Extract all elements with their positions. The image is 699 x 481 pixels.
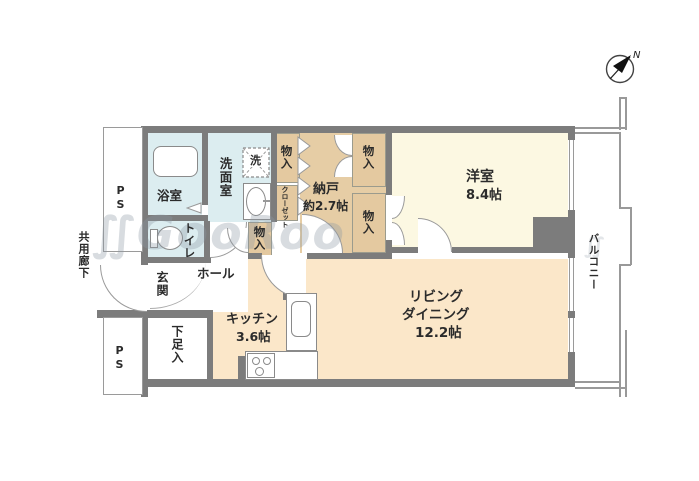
label-living-size: 12.2帖 [415,326,462,340]
window-living-1 [569,258,574,311]
window-living-2 [569,318,574,352]
washbasin-faucet [263,200,270,202]
wall-right-3 [568,311,575,318]
label-balcony: バルコニー [588,233,599,291]
wall-western-bottom-right [452,247,533,253]
balcony-bottom-line-1 [575,381,621,383]
label-genkan: 玄関 [156,271,168,297]
compass-north-label: N [633,50,641,61]
label-toilet: トイレ [183,222,195,260]
label-ps-top: PS [115,184,126,212]
label-storage-4: 物入 [362,210,374,235]
floor-plan: N ∬GooRoo ∬ 共用廊下 PS PS 浴室 洗面室 洗 トイレ 物入 ク… [0,0,699,481]
label-western-size: 8.4帖 [466,189,502,203]
balcony-bottom-line-2 [575,387,626,389]
stove-burner-1 [252,357,260,365]
label-kitchen-name: キッチン [226,313,278,327]
balcony-right-upper [619,132,621,208]
watermark-symbol: ∬ [92,206,137,260]
wall-right-2 [568,210,575,258]
label-washer: 洗 [250,155,261,167]
window-western-room [569,140,574,210]
label-bathroom: 浴室 [157,189,182,202]
stove-burner-2 [263,357,271,365]
front-door-swing [100,265,147,312]
label-living-line1: リビング [409,290,463,304]
stove-burner-3 [255,367,264,376]
watermark: ∬GooRoo [92,206,346,260]
label-closet: クローゼット [281,186,288,228]
wall-right-4 [568,352,575,387]
label-washroom: 洗面室 [218,157,231,198]
balcony-divider-cap [619,97,627,99]
label-shoe: 下足入 [171,325,183,364]
balcony-right-lower-1 [619,264,621,397]
wall-shoebox-right [207,312,213,381]
label-nando-name: 納戸 [313,183,339,197]
wall-nando-west-upper [386,126,392,195]
label-kitchen-size: 3.6帖 [236,330,271,343]
balcony-notch-side [630,207,632,265]
balcony-top-line-1 [575,127,626,129]
watermark-text: GooRoo [137,206,346,260]
kitchen-sink-icon [291,301,311,337]
balcony-divider-line-1 [619,97,621,130]
label-nando-size: 約2.7帖 [303,200,348,213]
wall-bath-wash [202,133,208,205]
balcony-divider-line-2 [625,97,627,130]
bathtub-icon [153,146,198,177]
wall-right-1 [568,126,575,140]
label-hall: ホール [197,267,235,280]
label-western-name: 洋室 [466,170,494,185]
label-storage-1: 物入 [280,145,292,170]
label-storage-2: 物入 [253,226,265,251]
compass-icon: N [600,46,648,92]
label-corridor: 共用廊下 [78,231,89,279]
wall-top [145,126,575,133]
label-ps-bottom: PS [114,344,125,372]
balcony-top-line-2 [575,132,620,134]
balcony-notch-bottom [619,264,631,266]
label-storage-3: 物入 [362,145,374,170]
label-living-line2: ダイニング [402,308,470,322]
wall-western-bottom-left [392,247,418,253]
